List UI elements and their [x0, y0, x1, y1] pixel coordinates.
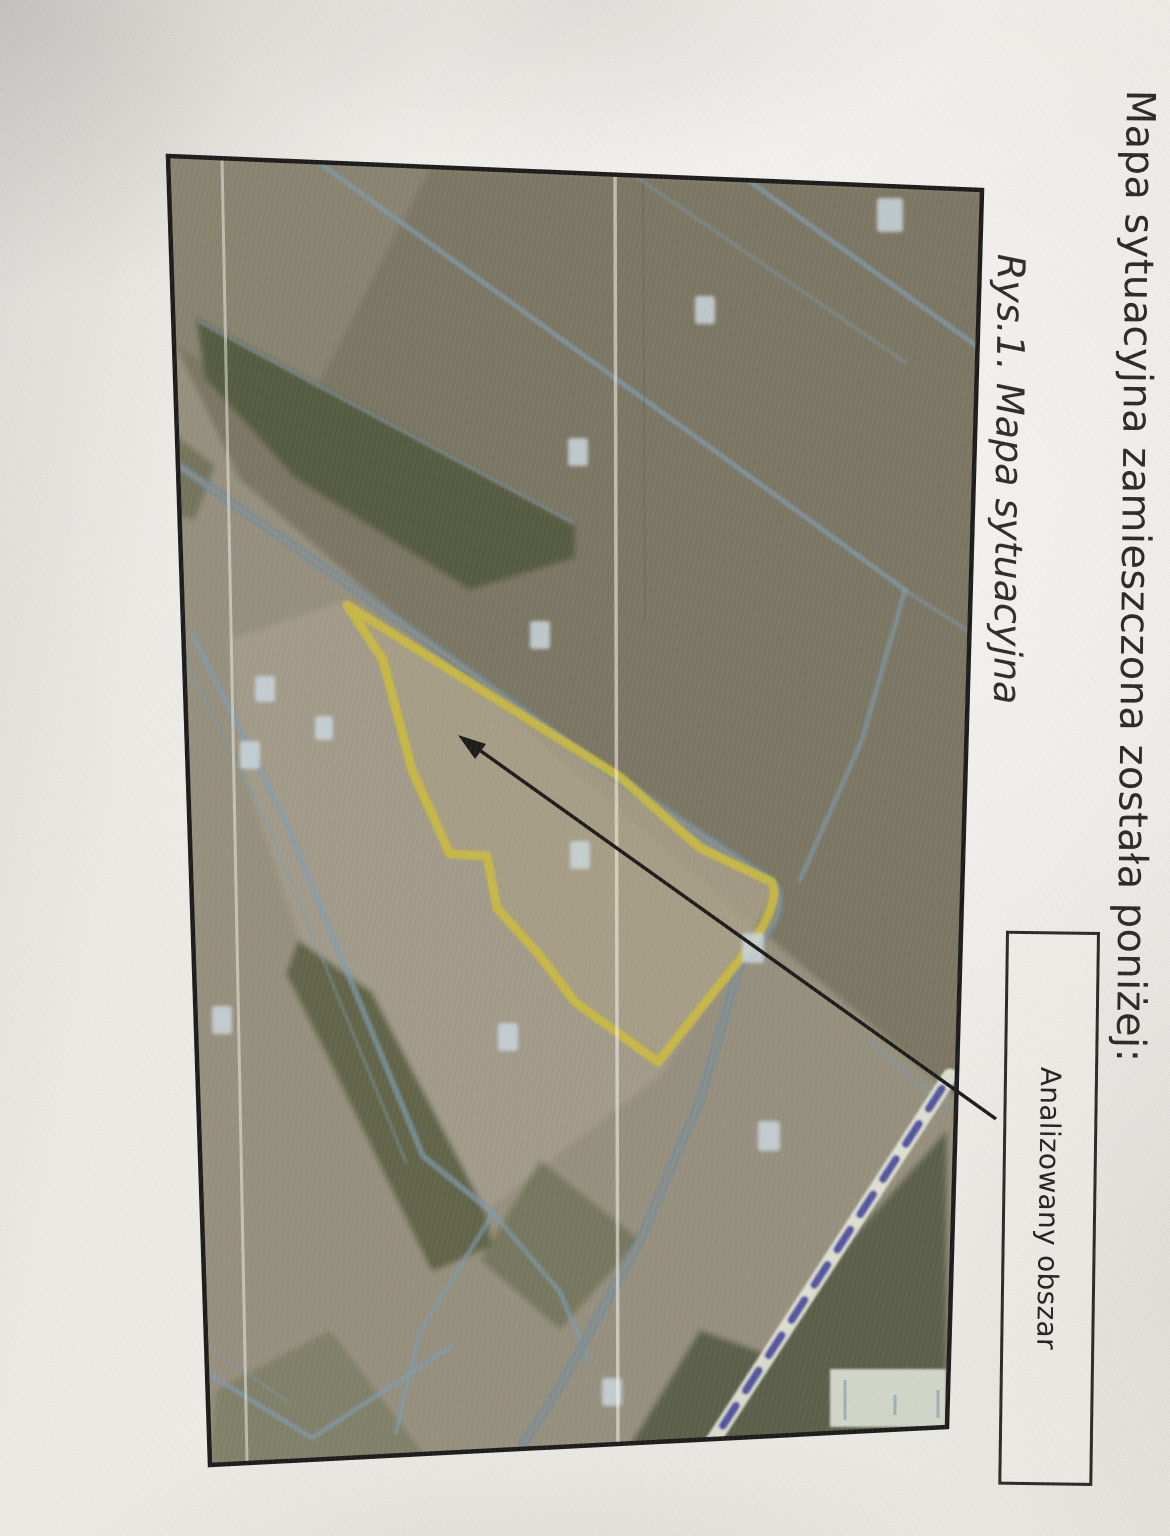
- analyzed-area-callout-label: Analizowany obszar: [1031, 1067, 1068, 1350]
- document-page: { "document": { "heading": "Mapa sytuacy…: [0, 0, 1170, 1536]
- analyzed-area-callout: Analizowany obszar: [998, 931, 1100, 1486]
- map-attribution-patch: [830, 1369, 946, 1427]
- document-heading: Mapa sytuacyjna zamieszczona została pon…: [1094, 89, 1163, 1135]
- figure-caption: Rys.1. Mapa sytuacyjna: [978, 254, 1033, 784]
